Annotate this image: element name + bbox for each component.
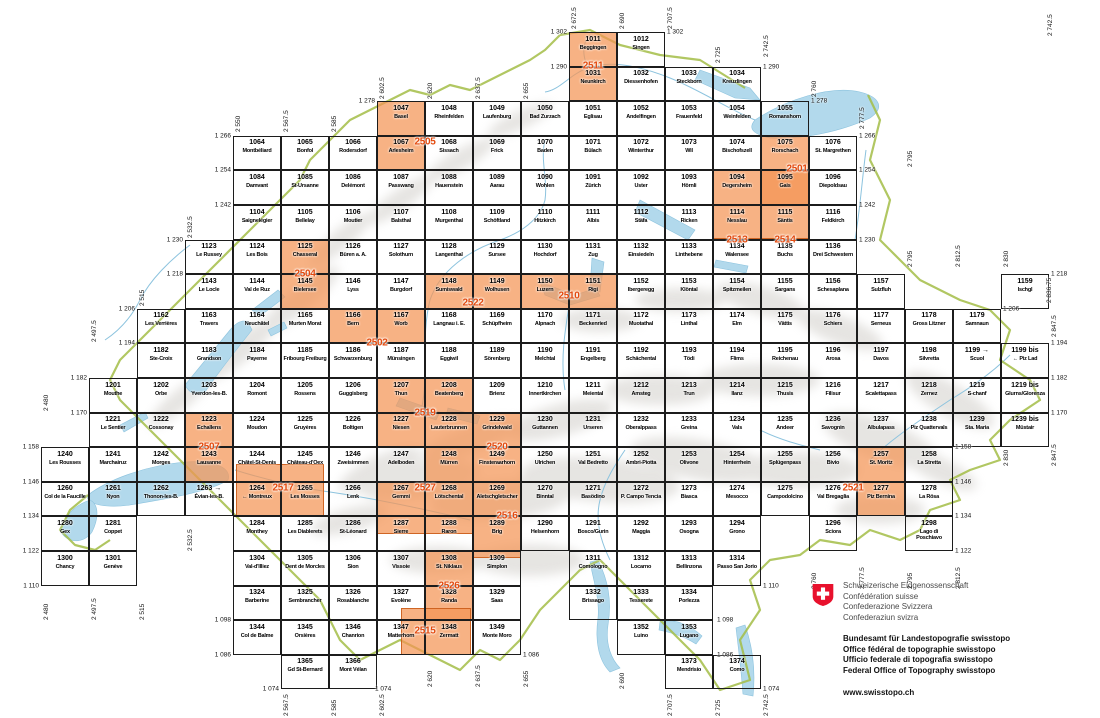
sheet-number: 1258 bbox=[906, 451, 952, 459]
sheet-name: Randa bbox=[426, 598, 472, 604]
sheet-name: Tesserete bbox=[618, 598, 664, 604]
sheet-name: Genève bbox=[90, 564, 136, 570]
map-sheet-cell: 1287Sierre bbox=[377, 516, 425, 551]
sheet-name: Feldkirch bbox=[810, 218, 856, 224]
map-sheet-cell: 1192Schächental bbox=[617, 343, 665, 378]
sheet-number: 1219 bbox=[954, 382, 1000, 390]
map-sheet-cell: 1236Savognin bbox=[809, 413, 857, 448]
sheet-name: Travers bbox=[186, 321, 232, 327]
legend-line: Confederazione Svizzera bbox=[843, 602, 1092, 613]
sheet-number: 1285 bbox=[282, 520, 328, 528]
map-sheet-cell: 1172Muotathal bbox=[617, 309, 665, 344]
sheet-name: Passo San Jorio bbox=[714, 564, 760, 570]
sheet-number: 1225 bbox=[282, 416, 328, 424]
map-sheet-cell: 1159Ischgl bbox=[1001, 274, 1049, 309]
sheet-number: 1238 bbox=[906, 416, 952, 424]
sheet-number: 1230 bbox=[522, 416, 568, 424]
sheet-number: 1107 bbox=[378, 209, 424, 217]
map-sheet-cell: 1292Maggia bbox=[617, 516, 665, 551]
sheet-number: 1236 bbox=[810, 416, 856, 424]
map-sheet-cell: 1086Delémont bbox=[329, 170, 377, 205]
sheet-number: 1255 bbox=[762, 451, 808, 459]
sheet-name: Trun bbox=[666, 391, 712, 397]
map-sheet-cell: 1233Greina bbox=[665, 413, 713, 448]
sheet-name: Le Russey bbox=[186, 252, 232, 258]
sheet-name: Thusis bbox=[762, 391, 808, 397]
sheet-number: 1157 bbox=[858, 278, 904, 286]
sheet-number: 1219 bis bbox=[1002, 382, 1048, 390]
sheet-number: 1201 bbox=[90, 382, 136, 390]
easting-label: 2 515 bbox=[139, 604, 146, 620]
sheet-name: Brienz bbox=[474, 391, 520, 397]
sheet-name: Rheinfelden bbox=[426, 114, 472, 120]
map-sheet-cell: 1154Spitzmeilen bbox=[713, 274, 761, 309]
easting-label: 2 836.75 bbox=[1046, 278, 1053, 303]
legend-line: Schweizerische Eidgenossenschaft bbox=[843, 581, 1092, 592]
sheet-name: Basödino bbox=[570, 494, 616, 500]
map-sheet-cell: 1242Morges bbox=[137, 447, 185, 482]
composite-number-label: 2517 bbox=[272, 483, 293, 494]
sheet-name: Col de la Faucille bbox=[42, 494, 88, 500]
sheet-name: Beatenberg bbox=[426, 391, 472, 397]
sheet-name: Oberalppass bbox=[618, 425, 664, 431]
sheet-name: Olivone bbox=[666, 460, 712, 466]
sheet-number: 1128 bbox=[426, 243, 472, 251]
sheet-name: Thonon-les-B. bbox=[138, 494, 184, 500]
sheet-number: 1064 bbox=[234, 139, 280, 147]
map-sheet-cell: 1185Fribourg Freiburg bbox=[281, 343, 329, 378]
map-sheet-cell: 1237Albulapass bbox=[857, 413, 905, 448]
sheet-number: 1209 bbox=[474, 382, 520, 390]
sheet-name: Müstair bbox=[1002, 425, 1048, 431]
sheet-name: Val Bedretto bbox=[570, 460, 616, 466]
sheet-name: Orbe bbox=[138, 391, 184, 397]
northing-label: 1 074 bbox=[375, 686, 391, 693]
map-sheet-cell: 1170Alpnach bbox=[521, 309, 569, 344]
sheet-name: Lenk bbox=[330, 494, 376, 500]
northing-label: 1 086 bbox=[523, 652, 539, 659]
sheet-number: 1313 bbox=[666, 555, 712, 563]
sheet-number: 1076 bbox=[810, 139, 856, 147]
sheet-number: 1346 bbox=[330, 624, 376, 632]
sheet-name: Ste-Croix bbox=[138, 356, 184, 362]
sheet-name: Gruyères bbox=[282, 425, 328, 431]
sheet-number: 1237 bbox=[858, 416, 904, 424]
sheet-name: Echallens bbox=[186, 425, 232, 431]
sheet-number: 1054 bbox=[714, 105, 760, 113]
sheet-name: Sierre bbox=[378, 529, 424, 535]
sheet-name: Neuchâtel bbox=[234, 321, 280, 327]
easting-label: 2 795 bbox=[907, 251, 914, 267]
map-sheet-cell: 1104Saignelégier bbox=[233, 205, 281, 240]
sheet-number: 1251 bbox=[570, 451, 616, 459]
map-sheet-cell: 1244Châtel-St-Denis bbox=[233, 447, 281, 482]
map-sheet-cell: 1012Singen bbox=[617, 32, 665, 67]
sheet-name: Bielersee bbox=[282, 287, 328, 293]
map-sheet-cell: 1344Col de Balme bbox=[233, 620, 281, 655]
map-sheet-cell: 1314Passo San Jorio bbox=[713, 551, 761, 586]
easting-label: 2 812.5 bbox=[955, 245, 962, 267]
easting-label: 2 497.5 bbox=[91, 320, 98, 342]
sheet-number: 1156 bbox=[810, 278, 856, 286]
easting-label: 2 567.5 bbox=[283, 110, 290, 132]
sheet-name: Langenthal bbox=[426, 252, 472, 258]
map-sheet-cell: 1219S-chanf bbox=[953, 378, 1001, 413]
sheet-number: 1070 bbox=[522, 139, 568, 147]
sheet-name: Laufenburg bbox=[474, 114, 520, 120]
sheet-name: Monte Moro bbox=[474, 633, 520, 639]
sheet-number: 1089 bbox=[474, 174, 520, 182]
sheet-name: Winterthur bbox=[618, 148, 664, 154]
map-sheet-cell: 1288Raron bbox=[425, 516, 473, 551]
sheet-number: 1226 bbox=[330, 416, 376, 424]
map-sheet-cell: 1215Thusis bbox=[761, 378, 809, 413]
sheet-number: 1223 bbox=[186, 416, 232, 424]
sheet-name: Bülach bbox=[570, 148, 616, 154]
composite-number-label: 2526 bbox=[438, 581, 459, 592]
sheet-number: 1050 bbox=[522, 105, 568, 113]
sheet-name: P. Campo Tencia bbox=[618, 494, 664, 500]
northing-label: 1 158 bbox=[955, 444, 971, 451]
sheet-number: 1333 bbox=[618, 589, 664, 597]
sheet-number: 1125 bbox=[282, 243, 328, 251]
map-sheet-cell: 1211Meiental bbox=[569, 378, 617, 413]
sheet-name: Schächental bbox=[618, 356, 664, 362]
sheet-number: 1312 bbox=[618, 555, 664, 563]
sheet-number: 1194 bbox=[714, 347, 760, 355]
map-sheet-cell: 1245Château-d'Oex bbox=[281, 447, 329, 482]
sheet-name: Beggingen bbox=[570, 45, 616, 51]
sheet-name: Filisur bbox=[810, 391, 856, 397]
sheet-number: 1311 bbox=[570, 555, 616, 563]
map-sheet-cell: 1129Sursee bbox=[473, 240, 521, 275]
sheet-name: Évian-les-B. bbox=[186, 494, 232, 500]
sheet-number: 1245 bbox=[282, 451, 328, 459]
sheet-number: 1206 bbox=[330, 382, 376, 390]
sheet-number: 1277 bbox=[858, 485, 904, 493]
map-sheet-cell: 1048Rheinfelden bbox=[425, 101, 473, 136]
sheet-number: 1242 bbox=[138, 451, 184, 459]
sheet-number: 1327 bbox=[378, 589, 424, 597]
northing-label: 1 230 bbox=[859, 237, 875, 244]
map-sheet-cell: 1111Albis bbox=[569, 205, 617, 240]
sheet-name: Zug bbox=[570, 252, 616, 258]
map-sheet-cell: 1179Samnaun bbox=[953, 309, 1001, 344]
sheet-name: Mesocco bbox=[714, 494, 760, 500]
sheet-number: 1250 bbox=[522, 451, 568, 459]
sheet-number: 1257 bbox=[858, 451, 904, 459]
map-sheet-cell: 1165Murten Morat bbox=[281, 309, 329, 344]
sheet-number: 1164 bbox=[234, 312, 280, 320]
sheet-name: Sembrancher bbox=[282, 598, 328, 604]
sheet-name: Arosa bbox=[810, 356, 856, 362]
map-sheet-cell: 1164Neuchâtel bbox=[233, 309, 281, 344]
composite-number-label: 2504 bbox=[294, 269, 315, 280]
map-sheet-cell: 1054Weinfelden bbox=[713, 101, 761, 136]
sheet-number: 1116 bbox=[810, 209, 856, 217]
sheet-number: 1231 bbox=[570, 416, 616, 424]
sheet-name: Luino bbox=[618, 633, 664, 639]
confederation-names: Schweizerische Eidgenossenschaft Confédé… bbox=[843, 581, 1092, 623]
easting-label: 2 480 bbox=[43, 395, 50, 411]
sheet-number: 1049 bbox=[474, 105, 520, 113]
map-sheet-cell: 1240Les Rousses bbox=[41, 447, 89, 482]
sheet-name: Kreuzlingen bbox=[714, 79, 760, 85]
map-sheet-cell: 1196Arosa bbox=[809, 343, 857, 378]
sheet-number: 1191 bbox=[570, 347, 616, 355]
sheet-name: Finsteraarhorn bbox=[474, 460, 520, 466]
sheet-number: 1034 bbox=[714, 70, 760, 78]
map-sheet-cell: 1074Bischofszell bbox=[713, 136, 761, 171]
map-sheet-cell: 1232Oberalppass bbox=[617, 413, 665, 448]
composite-number-label: 2522 bbox=[462, 298, 483, 309]
map-sheet-cell: 1191Engelberg bbox=[569, 343, 617, 378]
easting-label: 2 725 bbox=[715, 700, 722, 716]
sheet-number: 1286 bbox=[330, 520, 376, 528]
sheet-number: 1203 bbox=[186, 382, 232, 390]
northing-label: 1 098 bbox=[717, 617, 733, 624]
map-sheet-cell: 1155Sargans bbox=[761, 274, 809, 309]
sheet-name: Sursee bbox=[474, 252, 520, 258]
sheet-name: Scalettapass bbox=[858, 391, 904, 397]
map-sheet-cell: 1034Kreuzlingen bbox=[713, 67, 761, 102]
easting-label: 2 707.5 bbox=[667, 7, 674, 29]
northing-label: 1 122 bbox=[23, 548, 39, 555]
sheet-name: Aarau bbox=[474, 183, 520, 189]
map-sheet-cell: 1286St-Léonard bbox=[329, 516, 377, 551]
composite-number-label: 2513 bbox=[726, 235, 747, 246]
map-sheet-cell: 1130Hochdorf bbox=[521, 240, 569, 275]
northing-label: 1 218 bbox=[1051, 271, 1067, 278]
sheet-name: Hauenstein bbox=[426, 183, 472, 189]
map-sheet-cell: 1304Val-d'Illiez bbox=[233, 551, 281, 586]
map-sheet-cell: 1349Monte Moro bbox=[473, 620, 521, 655]
sheet-name: Bellinzona bbox=[666, 564, 712, 570]
sheet-number: 1287 bbox=[378, 520, 424, 528]
sheet-name: St-Léonard bbox=[330, 529, 376, 535]
sheet-number: 1345 bbox=[282, 624, 328, 632]
northing-label: 1 278 bbox=[359, 98, 375, 105]
composite-number-label: 2519 bbox=[414, 408, 435, 419]
sheet-name: Sulzfluh bbox=[858, 287, 904, 293]
sheet-number: 1298 bbox=[906, 520, 952, 528]
sheet-name: Val Bregaglia bbox=[810, 494, 856, 500]
sheet-number: 1188 bbox=[426, 347, 472, 355]
map-sheet-cell: 1273Biasca bbox=[665, 482, 713, 517]
map-sheet-cell: 1221Le Sentier bbox=[89, 413, 137, 448]
sheet-number: 1178 bbox=[906, 312, 952, 320]
composite-number-label: 2505 bbox=[414, 137, 435, 148]
map-sheet-cell: 1107Balsthal bbox=[377, 205, 425, 240]
map-sheet-cell: 1332Brissago bbox=[569, 586, 617, 621]
map-sheet-cell: 1266Lenk bbox=[329, 482, 377, 517]
northing-label: 1 254 bbox=[215, 167, 231, 174]
northing-label: 1 266 bbox=[215, 133, 231, 140]
sheet-name: Boltigen bbox=[330, 425, 376, 431]
sheet-name: S-chanf bbox=[954, 391, 1000, 397]
sheet-number: 1366 bbox=[330, 658, 376, 666]
sheet-name: Binntal bbox=[522, 494, 568, 500]
sheet-number: 1233 bbox=[666, 416, 712, 424]
sheet-name: Fribourg Freiburg bbox=[282, 356, 328, 362]
northing-label: 1 194 bbox=[1051, 340, 1067, 347]
sheet-name: Comologno bbox=[570, 564, 616, 570]
sheet-number: 1162 bbox=[138, 312, 184, 320]
sheet-number: 1148 bbox=[426, 278, 472, 286]
map-sheet-cell: 1055Romanshorn bbox=[761, 101, 809, 136]
sheet-number: 1131 bbox=[570, 243, 616, 251]
map-sheet-cell: 1173Linthal bbox=[665, 309, 713, 344]
sheet-name: Zweisimmen bbox=[330, 460, 376, 466]
map-sheet-cell: 1093Hörnli bbox=[665, 170, 713, 205]
sheet-number: 1172 bbox=[618, 312, 664, 320]
map-sheet-cell: 1345Orsières bbox=[281, 620, 329, 655]
sheet-name: Biasca bbox=[666, 494, 712, 500]
sheet-number: 1208 bbox=[426, 382, 472, 390]
map-sheet-cell: 1246Zweisimmen bbox=[329, 447, 377, 482]
sheet-number: 1032 bbox=[618, 70, 664, 78]
sheet-number: 1087 bbox=[378, 174, 424, 182]
sheet-number: 1108 bbox=[426, 209, 472, 217]
sheet-number: 1173 bbox=[666, 312, 712, 320]
sheet-number: 1307 bbox=[378, 555, 424, 563]
sheet-number: 1190 bbox=[522, 347, 568, 355]
composite-number-label: 2510 bbox=[558, 291, 579, 302]
sheet-name: Dent de Morcles bbox=[282, 564, 328, 570]
sheet-name: Wolhusen bbox=[474, 287, 520, 293]
sheet-number: 1324 bbox=[234, 589, 280, 597]
sheet-number: 1213 bbox=[666, 382, 712, 390]
map-sheet-cell: 1219 bisGlurns/Glorenza bbox=[1001, 378, 1049, 413]
sheet-number: 1197 bbox=[858, 347, 904, 355]
northing-label: 1 170 bbox=[71, 410, 87, 417]
map-sheet-cell: 1127Solothurn bbox=[377, 240, 425, 275]
map-sheet-cell: 1133Linthebene bbox=[665, 240, 713, 275]
map-sheet-cell: 1177Serneus bbox=[857, 309, 905, 344]
map-sheet-cell: 1199 →Scuol bbox=[953, 343, 1001, 378]
sheet-number: 1143 bbox=[186, 278, 232, 286]
northing-label: 1 158 bbox=[23, 444, 39, 451]
sheet-number: 1195 bbox=[762, 347, 808, 355]
composite-number-label: 2515 bbox=[414, 626, 435, 637]
sheet-number: 1096 bbox=[810, 174, 856, 182]
easting-label: 2 550 bbox=[235, 116, 242, 132]
sheet-number: 1104 bbox=[234, 209, 280, 217]
easting-label: 2 830 bbox=[1003, 450, 1010, 466]
sheet-number: 1170 bbox=[522, 312, 568, 320]
map-sheet-cell: 1325Sembrancher bbox=[281, 586, 329, 621]
sheet-name: Osogna bbox=[666, 529, 712, 535]
map-sheet-cell: 1202Orbe bbox=[137, 378, 185, 413]
sheet-name: Wohlen bbox=[522, 183, 568, 189]
sheet-name: Les Diablerets bbox=[282, 529, 328, 535]
map-sheet-cell: 1307Vissoie bbox=[377, 551, 425, 586]
sheet-name: Adelboden bbox=[378, 460, 424, 466]
map-sheet-cell: 1218Zernez bbox=[905, 378, 953, 413]
map-sheet-cell: 1047Basel bbox=[377, 101, 425, 136]
map-sheet-cell: 1334Porlezza bbox=[665, 586, 713, 621]
sheet-number: 1090 bbox=[522, 174, 568, 182]
sheet-number: 1204 bbox=[234, 382, 280, 390]
sheet-number: 1305 bbox=[282, 555, 328, 563]
northing-label: 1 086 bbox=[717, 652, 733, 659]
sheet-name: Frick bbox=[474, 148, 520, 154]
sheet-number: 1212 bbox=[618, 382, 664, 390]
sheet-number: 1256 bbox=[810, 451, 856, 459]
map-sheet-cell: 1153Klöntal bbox=[665, 274, 713, 309]
sheet-name: Muotathal bbox=[618, 321, 664, 327]
sheet-number: 1153 bbox=[666, 278, 712, 286]
sheet-number: 1074 bbox=[714, 139, 760, 147]
sheet-name: Drei Schwestern bbox=[810, 252, 856, 258]
sheet-number: 1325 bbox=[282, 589, 328, 597]
northing-label: 1 206 bbox=[119, 306, 135, 313]
sheet-name: Yverdon-les-B. bbox=[186, 391, 232, 397]
sheet-number: 1112 bbox=[618, 209, 664, 217]
northing-label: 1 254 bbox=[859, 167, 875, 174]
sheet-name: Bivio bbox=[810, 460, 856, 466]
sheet-name: Val-d'Illiez bbox=[234, 564, 280, 570]
sheet-name: La Stretta bbox=[906, 460, 952, 466]
sheet-name: Evolène bbox=[378, 598, 424, 604]
map-sheet-cell: 1298Lago di Poschiavo bbox=[905, 516, 953, 551]
sheet-name: Vissoie bbox=[378, 564, 424, 570]
sheet-number: 1055 bbox=[762, 105, 808, 113]
composite-number-label: 2507 bbox=[198, 442, 219, 453]
sheet-number: 1192 bbox=[618, 347, 664, 355]
map-sheet-cell: 1090Wohlen bbox=[521, 170, 569, 205]
map-sheet-cell: 1326Rosablanche bbox=[329, 586, 377, 621]
northing-label: 1 074 bbox=[263, 686, 279, 693]
easting-label: 2 637.5 bbox=[475, 77, 482, 99]
sheet-number: 1106 bbox=[330, 209, 376, 217]
sheet-name: Vättis bbox=[762, 321, 808, 327]
map-sheet-cell: 1199 bis← Piz Lad bbox=[1001, 343, 1049, 378]
map-sheet-cell: 1212Amsteg bbox=[617, 378, 665, 413]
map-sheet-cell: 1230Guttannen bbox=[521, 413, 569, 448]
sheet-number: 1105 bbox=[282, 209, 328, 217]
sheet-name: St-Ursanne bbox=[282, 183, 328, 189]
sheet-number: 1248 bbox=[426, 451, 472, 459]
sheet-number: 1229 bbox=[474, 416, 520, 424]
sheet-name: Monthey bbox=[234, 529, 280, 535]
sheet-number: 1344 bbox=[234, 624, 280, 632]
map-sheet-cell: 1072Winterthur bbox=[617, 136, 665, 171]
map-sheet-cell: 1187Münsingen bbox=[377, 343, 425, 378]
sheet-name: Hinterrhein bbox=[714, 460, 760, 466]
sheet-number: 1175 bbox=[762, 312, 808, 320]
map-sheet-cell: 1311Comologno bbox=[569, 551, 617, 586]
map-sheet-cell: 1085St-Ursanne bbox=[281, 170, 329, 205]
map-sheet-cell: 1234Vals bbox=[713, 413, 761, 448]
map-sheet-cell: 1171Beckenried bbox=[569, 309, 617, 344]
sheet-number: 1075 bbox=[762, 139, 808, 147]
sheet-name: Nesslau bbox=[714, 218, 760, 224]
easting-label: 2 497.5 bbox=[91, 598, 98, 620]
sheet-name: Uster bbox=[618, 183, 664, 189]
northing-label: 1 218 bbox=[167, 271, 183, 278]
map-sheet-cell: 1333Tesserete bbox=[617, 586, 665, 621]
legend: Schweizerische Eidgenossenschaft Confédé… bbox=[812, 581, 1092, 697]
sheet-number: 1290 bbox=[522, 520, 568, 528]
sheet-name: Eglisau bbox=[570, 114, 616, 120]
sheet-number: 1304 bbox=[234, 555, 280, 563]
sheet-number: 1278 bbox=[906, 485, 952, 493]
sheet-name: Engelberg bbox=[570, 356, 616, 362]
map-sheet-cell: 1108Murgenthal bbox=[425, 205, 473, 240]
sheet-number: 1066 bbox=[330, 139, 376, 147]
sheet-name: Sargans bbox=[762, 287, 808, 293]
